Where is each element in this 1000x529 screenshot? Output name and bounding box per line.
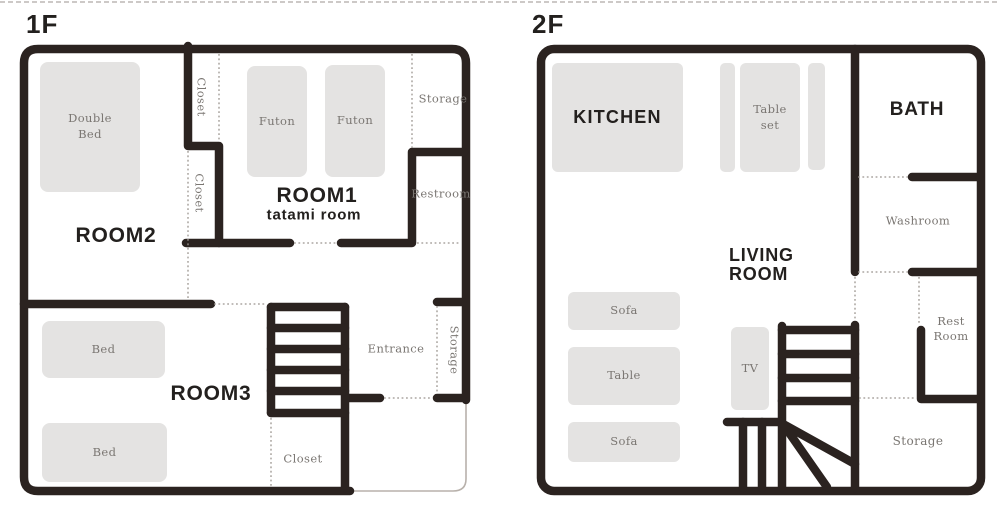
table-label: Table	[607, 368, 640, 384]
closet-upper-label: Closet	[194, 77, 209, 116]
storage-top-label: Storage	[419, 92, 468, 107]
bed-upper-label: Bed	[92, 342, 116, 358]
sofa-lower-label: Sofa	[610, 434, 638, 450]
1f-stair-steps	[271, 307, 345, 413]
bed-lower-label: Bed	[93, 445, 117, 461]
2f-stair-steps	[782, 330, 855, 401]
tv-label: TV	[742, 361, 759, 377]
bench-right	[808, 63, 825, 170]
sofa-upper-label: Sofa	[610, 303, 638, 319]
closet-bottom-label: Closet	[283, 452, 322, 467]
kitchen-label: KITCHEN	[573, 107, 661, 128]
floor1-title: 1F	[26, 9, 58, 40]
futon-left: Futon	[247, 66, 307, 177]
double-bed-label: Double Bed	[65, 111, 115, 142]
futon-left-label: Futon	[259, 114, 295, 130]
washroom-label: Washroom	[886, 214, 950, 229]
table-set: Table set	[740, 63, 800, 172]
sofa-lower: Sofa	[568, 422, 680, 462]
bed-lower: Bed	[42, 423, 167, 482]
sofa-upper: Sofa	[568, 292, 680, 330]
floor2-title: 2F	[532, 9, 564, 40]
living-room-label: LIVING ROOM	[729, 246, 799, 283]
storage-entrance-label: Storage	[447, 326, 462, 375]
table: Table	[568, 347, 680, 405]
bed-upper: Bed	[42, 321, 165, 378]
restroom-label: Restroom	[411, 187, 470, 202]
kitchen-counter: KITCHEN	[552, 63, 683, 172]
room2-label: ROOM2	[75, 224, 156, 248]
futon-right-label: Futon	[337, 113, 373, 129]
room3-label: ROOM3	[170, 382, 251, 406]
bath-label: BATH	[890, 99, 945, 121]
closet-middle-label: Closet	[192, 173, 207, 212]
bench-left	[720, 63, 735, 172]
table-set-label: Table set	[751, 102, 789, 133]
storage2-label: Storage	[893, 434, 944, 450]
tv: TV	[731, 327, 769, 410]
2f-dotted-lines	[855, 177, 919, 398]
floor-plan-image: Double Bed Futon Futon Bed Bed 1F ROOM2 …	[0, 0, 1000, 529]
room1-label: ROOM1	[276, 184, 357, 208]
1f-entrance-thin-outline	[348, 396, 466, 491]
rest-room-label: Rest Room	[927, 314, 975, 344]
room1-subtitle: tatami room	[267, 207, 362, 224]
1f-closet-wall	[188, 46, 219, 243]
double-bed: Double Bed	[40, 62, 140, 192]
futon-right: Futon	[325, 65, 385, 177]
entrance-label: Entrance	[368, 342, 425, 357]
2f-stair-balusters	[743, 422, 762, 488]
2f-stair-winder-diagonals	[783, 424, 855, 487]
